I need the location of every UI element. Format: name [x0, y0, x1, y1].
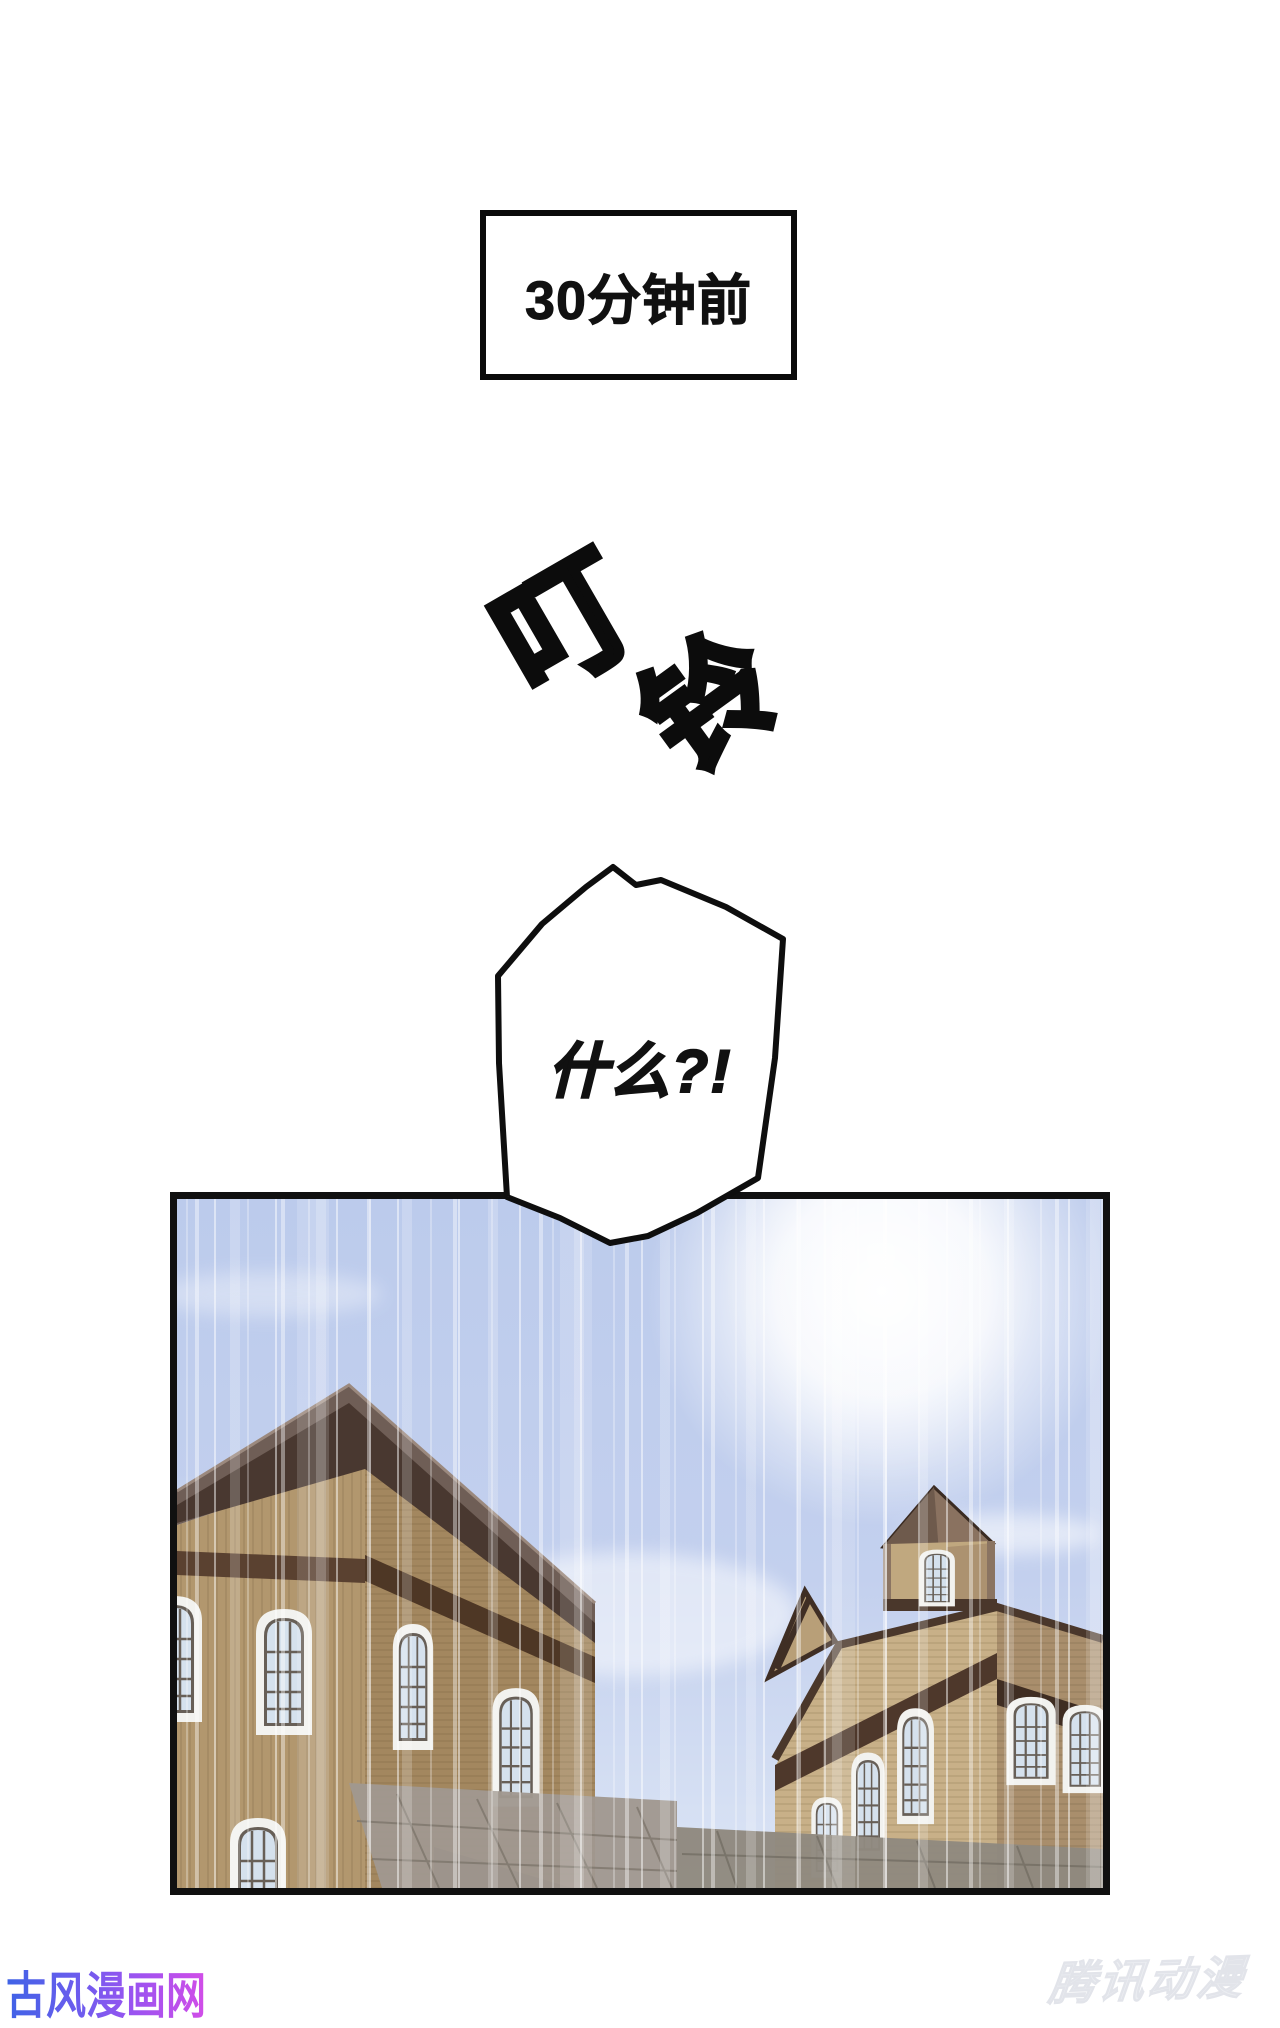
panel-illustration [177, 1199, 1103, 1888]
watermark-bottom-right: 腾讯动漫 [1046, 1941, 1250, 2014]
comic-panel [170, 1192, 1110, 1895]
speech-bubble-text: 什么?! [500, 1024, 780, 1108]
caption-text: 30分钟前 [525, 256, 752, 335]
comic-page: 30分钟前 叮 铃 [0, 0, 1280, 2028]
caption-box: 30分钟前 [480, 210, 797, 380]
watermark-bottom-left: 古风漫画网 [6, 1969, 206, 2024]
